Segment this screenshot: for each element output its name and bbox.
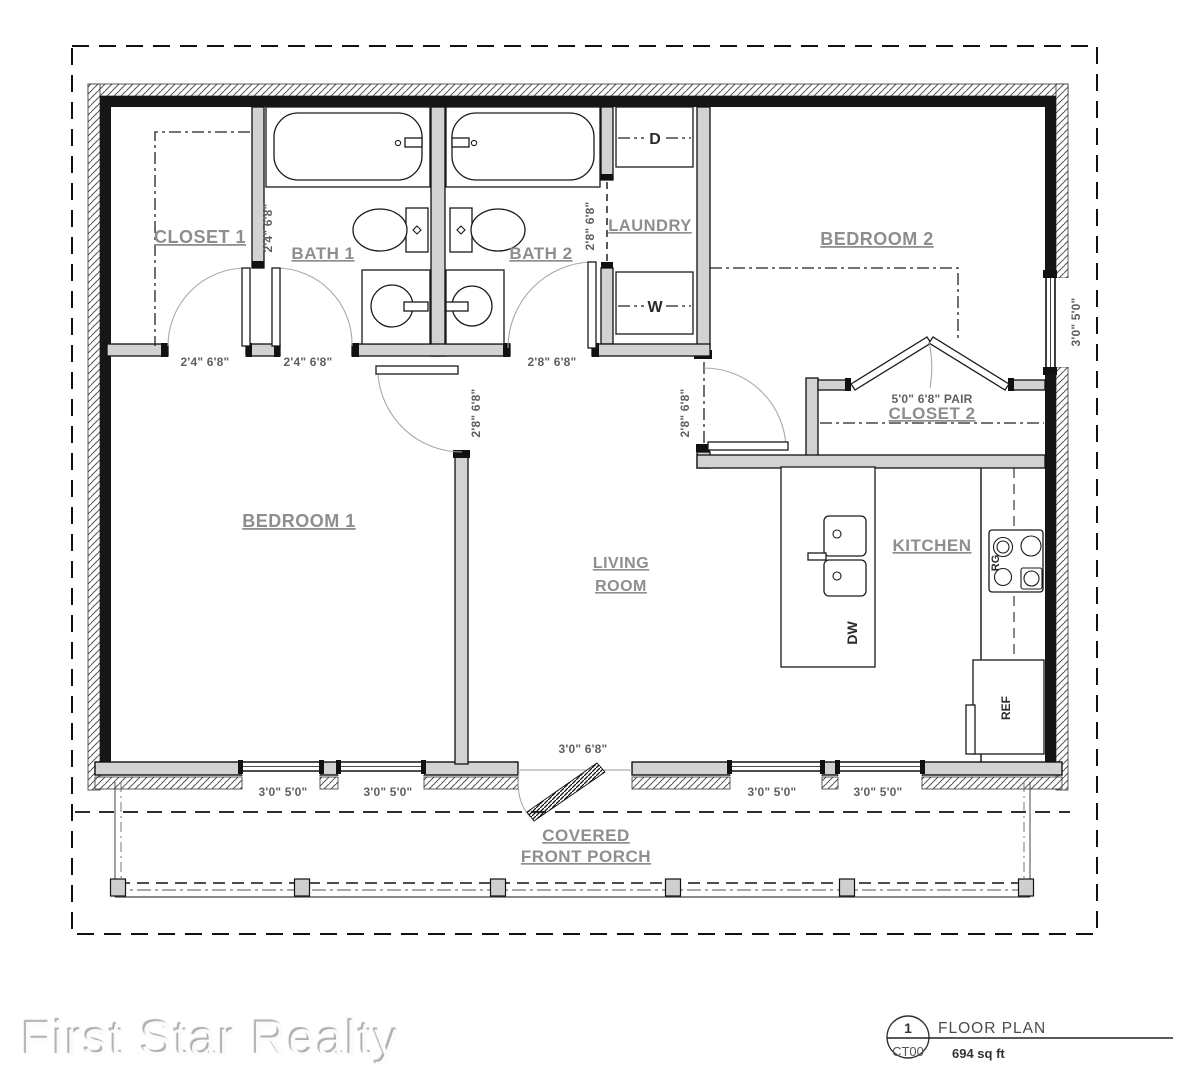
- floor-plan-drawing: D W RG REF DW: [0, 0, 1199, 1080]
- living-room-label-line2: ROOM: [595, 578, 647, 595]
- laundry-label: LAUNDRY: [608, 217, 692, 235]
- bedroom1-door-dim: 2'8" 6'8": [469, 389, 483, 438]
- closet1-door: [168, 268, 250, 346]
- kitchen-fixtures: RG REF DW: [781, 467, 1044, 762]
- floor-plan-sheet: D W RG REF DW: [0, 0, 1199, 1080]
- bedroom2-ceiling-line: [710, 268, 958, 338]
- kitchen-island: DW: [781, 467, 875, 667]
- window-d-dim: 3'0" 5'0": [854, 785, 903, 799]
- bedroom1-label: BEDROOM 1: [242, 511, 356, 531]
- living-room-label-line1: LIVING: [593, 555, 649, 572]
- range-label: RG: [990, 555, 1002, 572]
- window-bedroom1-b: [336, 760, 426, 775]
- window-bedroom1-a: [238, 760, 324, 775]
- bedroom2-window-dim: 3'0" 5'0": [1069, 298, 1083, 347]
- bath2-label: BATH 2: [509, 244, 572, 263]
- porch-label-line2: FRONT PORCH: [521, 847, 651, 866]
- window-c-dim: 3'0" 5'0": [748, 785, 797, 799]
- sheet-ref: CT00: [892, 1044, 924, 1059]
- bath1-door: [272, 268, 352, 346]
- window-b-dim: 3'0" 5'0": [364, 785, 413, 799]
- refrigerator: REF: [966, 660, 1044, 754]
- bedroom2-door: [704, 368, 788, 450]
- window-a-dim: 3'0" 5'0": [259, 785, 308, 799]
- dryer-label: D: [649, 131, 661, 148]
- bedroom2-label: BEDROOM 2: [820, 229, 934, 249]
- closet1-label: CLOSET 1: [154, 227, 246, 247]
- exterior-walls: [88, 84, 1068, 790]
- bath1-door-side-dim: 2'4" 6'8": [261, 204, 275, 253]
- title-block: 1 CT00 FLOOR PLAN 694 sq ft: [887, 1016, 1173, 1061]
- porch-label-line1: COVERED: [542, 826, 630, 845]
- washer-label: W: [647, 299, 663, 316]
- window-kitchen: [835, 760, 925, 775]
- bath2-fixtures: [446, 107, 600, 344]
- range: RG: [989, 530, 1043, 592]
- doors: [168, 262, 1009, 821]
- closet1-door-dim: 2'4" 6'8": [181, 355, 230, 369]
- bath2-door: [508, 262, 596, 348]
- island-faucet: [808, 553, 826, 560]
- bedroom1-door: [376, 366, 462, 452]
- window-living: [727, 760, 825, 775]
- drawing-title: FLOOR PLAN: [938, 1020, 1046, 1037]
- porch-posts: [111, 879, 1034, 896]
- area-label: 694 sq ft: [952, 1046, 1005, 1061]
- bath1-door-dim: 2'4" 6'8": [284, 355, 333, 369]
- closet2-doors-dim: 5'0" 6'8" PAIR: [891, 392, 972, 406]
- dishwasher-label: DW: [844, 621, 860, 645]
- interior-walls: [107, 107, 1045, 764]
- bath1-fixtures: [266, 107, 430, 344]
- closet2-pair-doors: [851, 337, 1009, 390]
- window-bedroom2: [1042, 270, 1069, 375]
- kitchen-label: KITCHEN: [892, 536, 971, 555]
- bath2-door-dim: 2'8" 6'8": [528, 355, 577, 369]
- refrigerator-label: REF: [999, 696, 1013, 720]
- laundry-door-dim: 2'8" 6'8": [583, 202, 597, 251]
- realty-logo: First Star Realty: [22, 1012, 400, 1067]
- detail-number: 1: [904, 1020, 912, 1036]
- bath1-label: BATH 1: [291, 244, 354, 263]
- closet2-label: CLOSET 2: [888, 404, 975, 423]
- front-door-dim: 3'0" 6'8": [559, 742, 608, 756]
- bedroom2-door-dim: 2'8" 6'8": [678, 389, 692, 438]
